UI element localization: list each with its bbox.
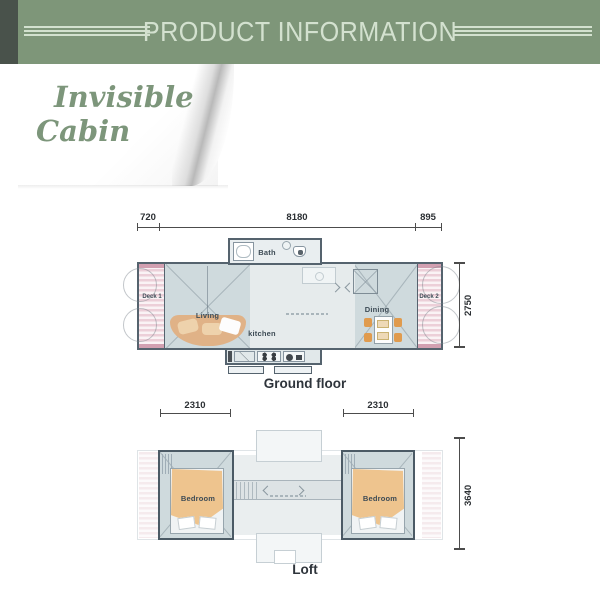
- dimension-tick: [413, 409, 414, 417]
- page-curl-sheet: Invisible Cabin: [18, 64, 218, 186]
- banner-corner-block: [0, 0, 18, 64]
- bathtub: [233, 242, 254, 261]
- dimension-cap: [454, 346, 465, 348]
- deck-edge: [418, 344, 441, 348]
- bathroom: Bath: [228, 238, 322, 265]
- dimension-label-2310-right: 2310: [343, 400, 413, 411]
- deck2-area: [417, 264, 441, 348]
- rule-line: [454, 34, 592, 36]
- ridge-line: [207, 266, 208, 314]
- dimension-tick: [137, 223, 138, 231]
- rule-line: [454, 30, 592, 32]
- deck-roof-right: [422, 452, 441, 538]
- dimension-cap: [454, 262, 465, 264]
- dimension-label-2750: 2750: [463, 288, 475, 322]
- dimension-tick: [415, 223, 416, 231]
- deck-fold-arc: [422, 306, 460, 344]
- fine-print-line: [286, 313, 328, 315]
- header-banner: PRODUCT INFORMATION: [0, 0, 600, 64]
- deck2-label: Deck 2: [414, 294, 444, 300]
- loft-stairs: [236, 482, 258, 499]
- bedroom-left: Bedroom: [158, 450, 234, 540]
- dining-label: Dining: [352, 305, 402, 314]
- entry-step: [274, 366, 312, 374]
- dimension-tick: [441, 223, 442, 231]
- dimension-tick: [159, 223, 160, 231]
- loft-walkway: [234, 480, 341, 500]
- product-name: Invisible Cabin: [18, 80, 203, 148]
- loft-plan: 2310 2310: [130, 400, 480, 585]
- counter-unit: [302, 267, 336, 284]
- dimension-line-left: [160, 413, 230, 414]
- fine-print-line: [270, 495, 306, 497]
- header-rule-right: [454, 26, 592, 36]
- walkway-arrow-icon: [295, 486, 305, 496]
- dimension-label-8180: 8180: [267, 212, 327, 223]
- entry-step: [228, 366, 264, 374]
- kitchen-label: kitchen: [242, 329, 282, 338]
- bedroom-left-label: Bedroom: [168, 494, 228, 503]
- bedroom-right-label: Bedroom: [350, 494, 410, 503]
- dimension-line-side: [459, 437, 460, 550]
- dining-chair: [394, 318, 402, 327]
- walkway-arrow-icon: [263, 486, 273, 496]
- deck-roof-left: [139, 452, 158, 538]
- product-name-line1: Invisible: [54, 80, 203, 114]
- deck-edge: [139, 344, 164, 348]
- product-information-page: PRODUCT INFORMATION Invisible Cabin 720 …: [0, 0, 600, 600]
- dimension-line-side: [459, 262, 460, 348]
- loft-caption: Loft: [130, 562, 480, 577]
- storage-closet: [353, 269, 378, 294]
- product-name-line2: Cabin: [36, 114, 203, 148]
- dimension-cap: [454, 437, 465, 439]
- bath-label: Bath: [253, 248, 281, 257]
- deck1-label: Deck 1: [137, 294, 167, 300]
- ground-floor-caption: Ground floor: [130, 376, 480, 391]
- kitchen-unit: [234, 351, 255, 362]
- wash-basin: [282, 241, 291, 250]
- dimension-cap: [454, 548, 465, 550]
- dimension-label-2310-left: 2310: [160, 400, 230, 411]
- rule-line: [454, 26, 592, 28]
- dining-chair: [394, 333, 402, 342]
- dimension-label-3640: 3640: [463, 478, 475, 512]
- dining-chair: [364, 333, 372, 342]
- bath-roof-outline: [256, 430, 322, 462]
- dining-table: [374, 316, 393, 344]
- dimension-label-720: 720: [132, 212, 164, 223]
- dimension-line-right: [343, 413, 413, 414]
- living-label: Living: [185, 311, 230, 320]
- toilet: [293, 246, 306, 257]
- kitchen-counter: [225, 348, 322, 365]
- sheet-drop-shadow: [18, 185, 228, 189]
- stove: [257, 351, 281, 362]
- dimension-label-895: 895: [410, 212, 446, 223]
- dimension-line-top: [137, 227, 442, 228]
- stair-arrow-icon: [331, 283, 341, 293]
- bedroom-right: Bedroom: [341, 450, 415, 540]
- dining-chair: [364, 318, 372, 327]
- deck1-area: [139, 264, 165, 348]
- counter-basin: [315, 272, 324, 281]
- loft-open-area: [234, 455, 341, 535]
- deck-fold-arc: [123, 308, 157, 342]
- dimension-tick: [230, 409, 231, 417]
- kitchen-sink: [283, 351, 305, 362]
- ground-floor-plan: 720 8180 895: [130, 205, 480, 395]
